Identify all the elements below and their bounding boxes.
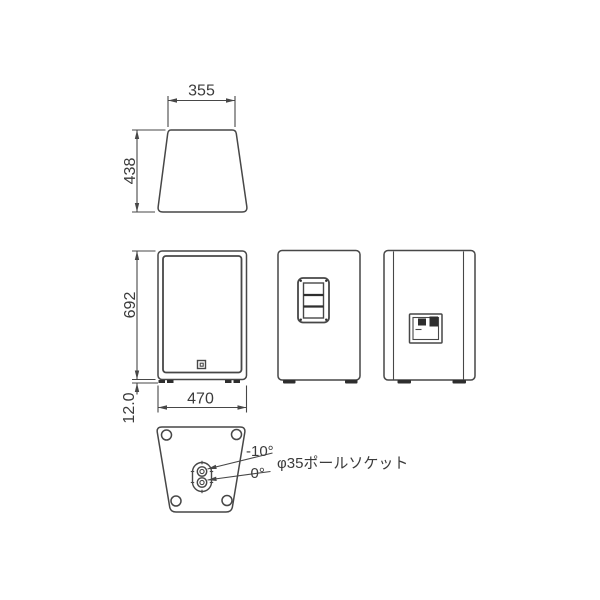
tilt-angle-label: -10° [246, 443, 274, 460]
dim-front-width-label: 470 [187, 391, 214, 408]
bottom-view: -10° 0° φ35ポールソケット [157, 427, 408, 512]
dim-foot-height: 12.0 [121, 383, 158, 424]
pole-socket-label: φ35ポールソケット [277, 455, 408, 472]
dim-top-depth-label: 438 [122, 158, 139, 185]
drawing-canvas: 355 438 692 1 [0, 0, 600, 600]
dim-top-width-label: 355 [188, 83, 215, 100]
dim-foot-height-label: 12.0 [121, 392, 138, 423]
dim-front-width: 470 [158, 386, 247, 413]
side-cabinet-outline [278, 251, 360, 381]
top-view: 355 438 [122, 83, 247, 213]
dim-front-height-label: 692 [122, 292, 139, 319]
front-feet [159, 380, 241, 383]
front-view: 692 12.0 470 [121, 251, 247, 424]
dim-top-width: 355 [168, 83, 235, 128]
connector-panel [410, 314, 443, 343]
side-view [278, 251, 360, 384]
top-view-outline [158, 130, 247, 212]
dim-front-height: 692 [122, 251, 156, 380]
speaker-dimension-drawing: 355 438 692 1 [0, 0, 600, 600]
rear-view [384, 251, 475, 384]
zero-angle-label: 0° [251, 465, 265, 482]
